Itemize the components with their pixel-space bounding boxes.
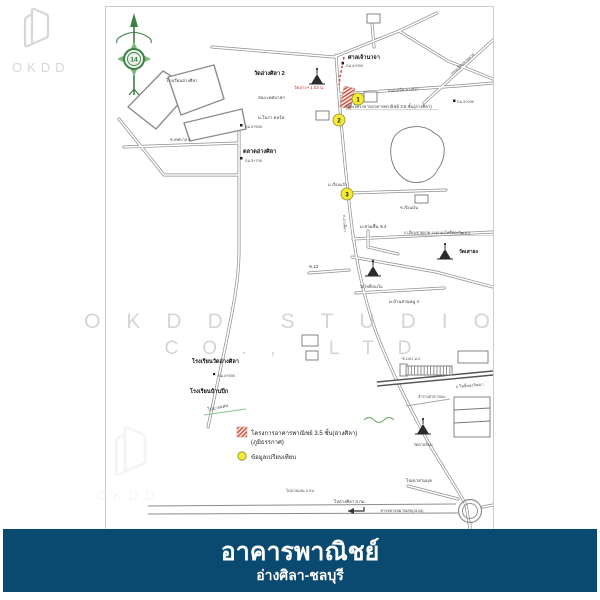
label-baan-suan: ม.บ้านสวนหมู่ 4 bbox=[389, 299, 420, 305]
label-to-sammuk: ไปเขาสามมุข bbox=[405, 478, 432, 484]
label-beach-road14: ถ.เลียบชายหาด 14(ถนนโพธิ์ทองวัฒนา) bbox=[404, 229, 471, 235]
legend-project-line1: โครงการอาคารพาณิชย์ 3.5 ชั้น(อ่างศิลา) bbox=[251, 427, 357, 437]
poi-marker-1: 1 bbox=[352, 93, 364, 105]
banner-title: อาคารพาณิชย์ bbox=[221, 538, 380, 566]
city-blocks bbox=[128, 65, 246, 141]
compass-label: 14 bbox=[130, 57, 138, 64]
label-wat-angsila: วัดอ่างศิลา 2 bbox=[254, 70, 285, 77]
poi-marker-3: 3 bbox=[341, 188, 353, 200]
roundabout bbox=[459, 500, 482, 523]
label-soi13: ซ.13 bbox=[309, 264, 319, 269]
title-banner: อาคารพาณิชย์ อ่างศิลา-ชลบุรี bbox=[3, 529, 597, 592]
label-wat-saothong: วัดเสาธง bbox=[459, 248, 479, 255]
poi-marker-2: 2 bbox=[333, 114, 345, 126]
label-soi14: ซ.14/1 ม.2 bbox=[402, 356, 420, 361]
label-lamrang: ลำรางสาธารณะ bbox=[418, 394, 446, 399]
temple-icon bbox=[437, 243, 453, 259]
label-km3000: กม.3+000 bbox=[457, 99, 475, 104]
label-municipal: สนง.เทศบาลฯ bbox=[258, 95, 285, 100]
label-soi-tessaban: ซ.เทศบาล 8 bbox=[170, 137, 190, 142]
label-wat-photong: วัดโพธิ์ทองใน bbox=[359, 283, 382, 289]
compass-rose: 14 bbox=[117, 13, 151, 95]
stream-line bbox=[364, 418, 394, 423]
label-km4500: กม.4+500 bbox=[218, 373, 236, 378]
listing-image: OKDD bbox=[0, 0, 600, 600]
legend-compare-label: ข้อมูลเปรียบเทียบ bbox=[251, 453, 296, 461]
drain-line bbox=[406, 399, 450, 406]
location-map: 14 ศาลเจ้านาจา กม.4+000 กม.3+000 กม.3+5 bbox=[105, 6, 494, 530]
okdd-logo-icon bbox=[22, 6, 50, 54]
label-to-bangsaen-bottom: ไปบางแสน 4 กม. bbox=[285, 488, 315, 493]
label-wat-tanlom: วัดตาลล้อม bbox=[413, 442, 433, 447]
label-chuanchuen: ม.ชวนชื่น ซ.4 bbox=[360, 223, 387, 229]
label-km3700: กม.3+700 bbox=[245, 158, 263, 163]
legend-marker-icon bbox=[238, 452, 246, 460]
map-legend: โครงการอาคารพาณิชย์ 3.5 ชั้น(อ่างศิลา) (… bbox=[237, 427, 357, 461]
label-angsila-rd: ถ.อ่างศิลา bbox=[342, 215, 348, 232]
label-nora: ม.โนรา คอร์ท bbox=[258, 114, 284, 120]
label-ruen-kaew: ม.เรือนแก้ว bbox=[328, 182, 347, 187]
okdd-logo-text: OKDD bbox=[12, 60, 82, 75]
label-market: ตลาดอ่างศิลา bbox=[243, 148, 276, 155]
label-km4000: กม.4+000 bbox=[346, 63, 364, 68]
label-pho-wattana-rd: ถ.โพธิ์ทองวัฒนา bbox=[456, 381, 484, 389]
temple-icon bbox=[309, 68, 325, 84]
map-canvas: 14 ศาลเจ้านาจา กม.4+000 กม.3+000 กม.3+5 bbox=[106, 7, 493, 529]
label-km3500: กม.3+500 bbox=[245, 124, 263, 129]
legend-project-icon bbox=[237, 427, 247, 437]
legend-project-line2: (ภูมิธรรกาศ) bbox=[251, 439, 284, 446]
brand-watermark: OKDD bbox=[12, 6, 82, 86]
label-school-mid: โรงเรียนวัดอ่างศิลา bbox=[191, 357, 239, 365]
label-shrine: ศาลเจ้านาจา bbox=[348, 53, 380, 61]
label-school-low: โรงเรียนบ้านปึก bbox=[189, 387, 229, 395]
banner-subtitle: อ่างศิลา-ชลบุรี bbox=[256, 566, 344, 584]
label-ruen-ngoen: ซ.เรือนเงิน bbox=[400, 205, 418, 210]
label-semed-rd: ถนนเสม็ด-อ่างศิลา bbox=[388, 85, 420, 93]
label-distance-note: วัดอ่างฯ 1.03 น. bbox=[294, 85, 324, 90]
label-highway: ทางหลวงหมายเลข(3134) bbox=[381, 508, 425, 513]
label-school-top: โรงเรียนอ่างศิลา bbox=[166, 77, 198, 83]
label-to-bangsaen-side: ไปบางแสน bbox=[206, 403, 228, 412]
label-to-angsila: ไปอ่างศิลา 3 กม. bbox=[333, 499, 366, 504]
